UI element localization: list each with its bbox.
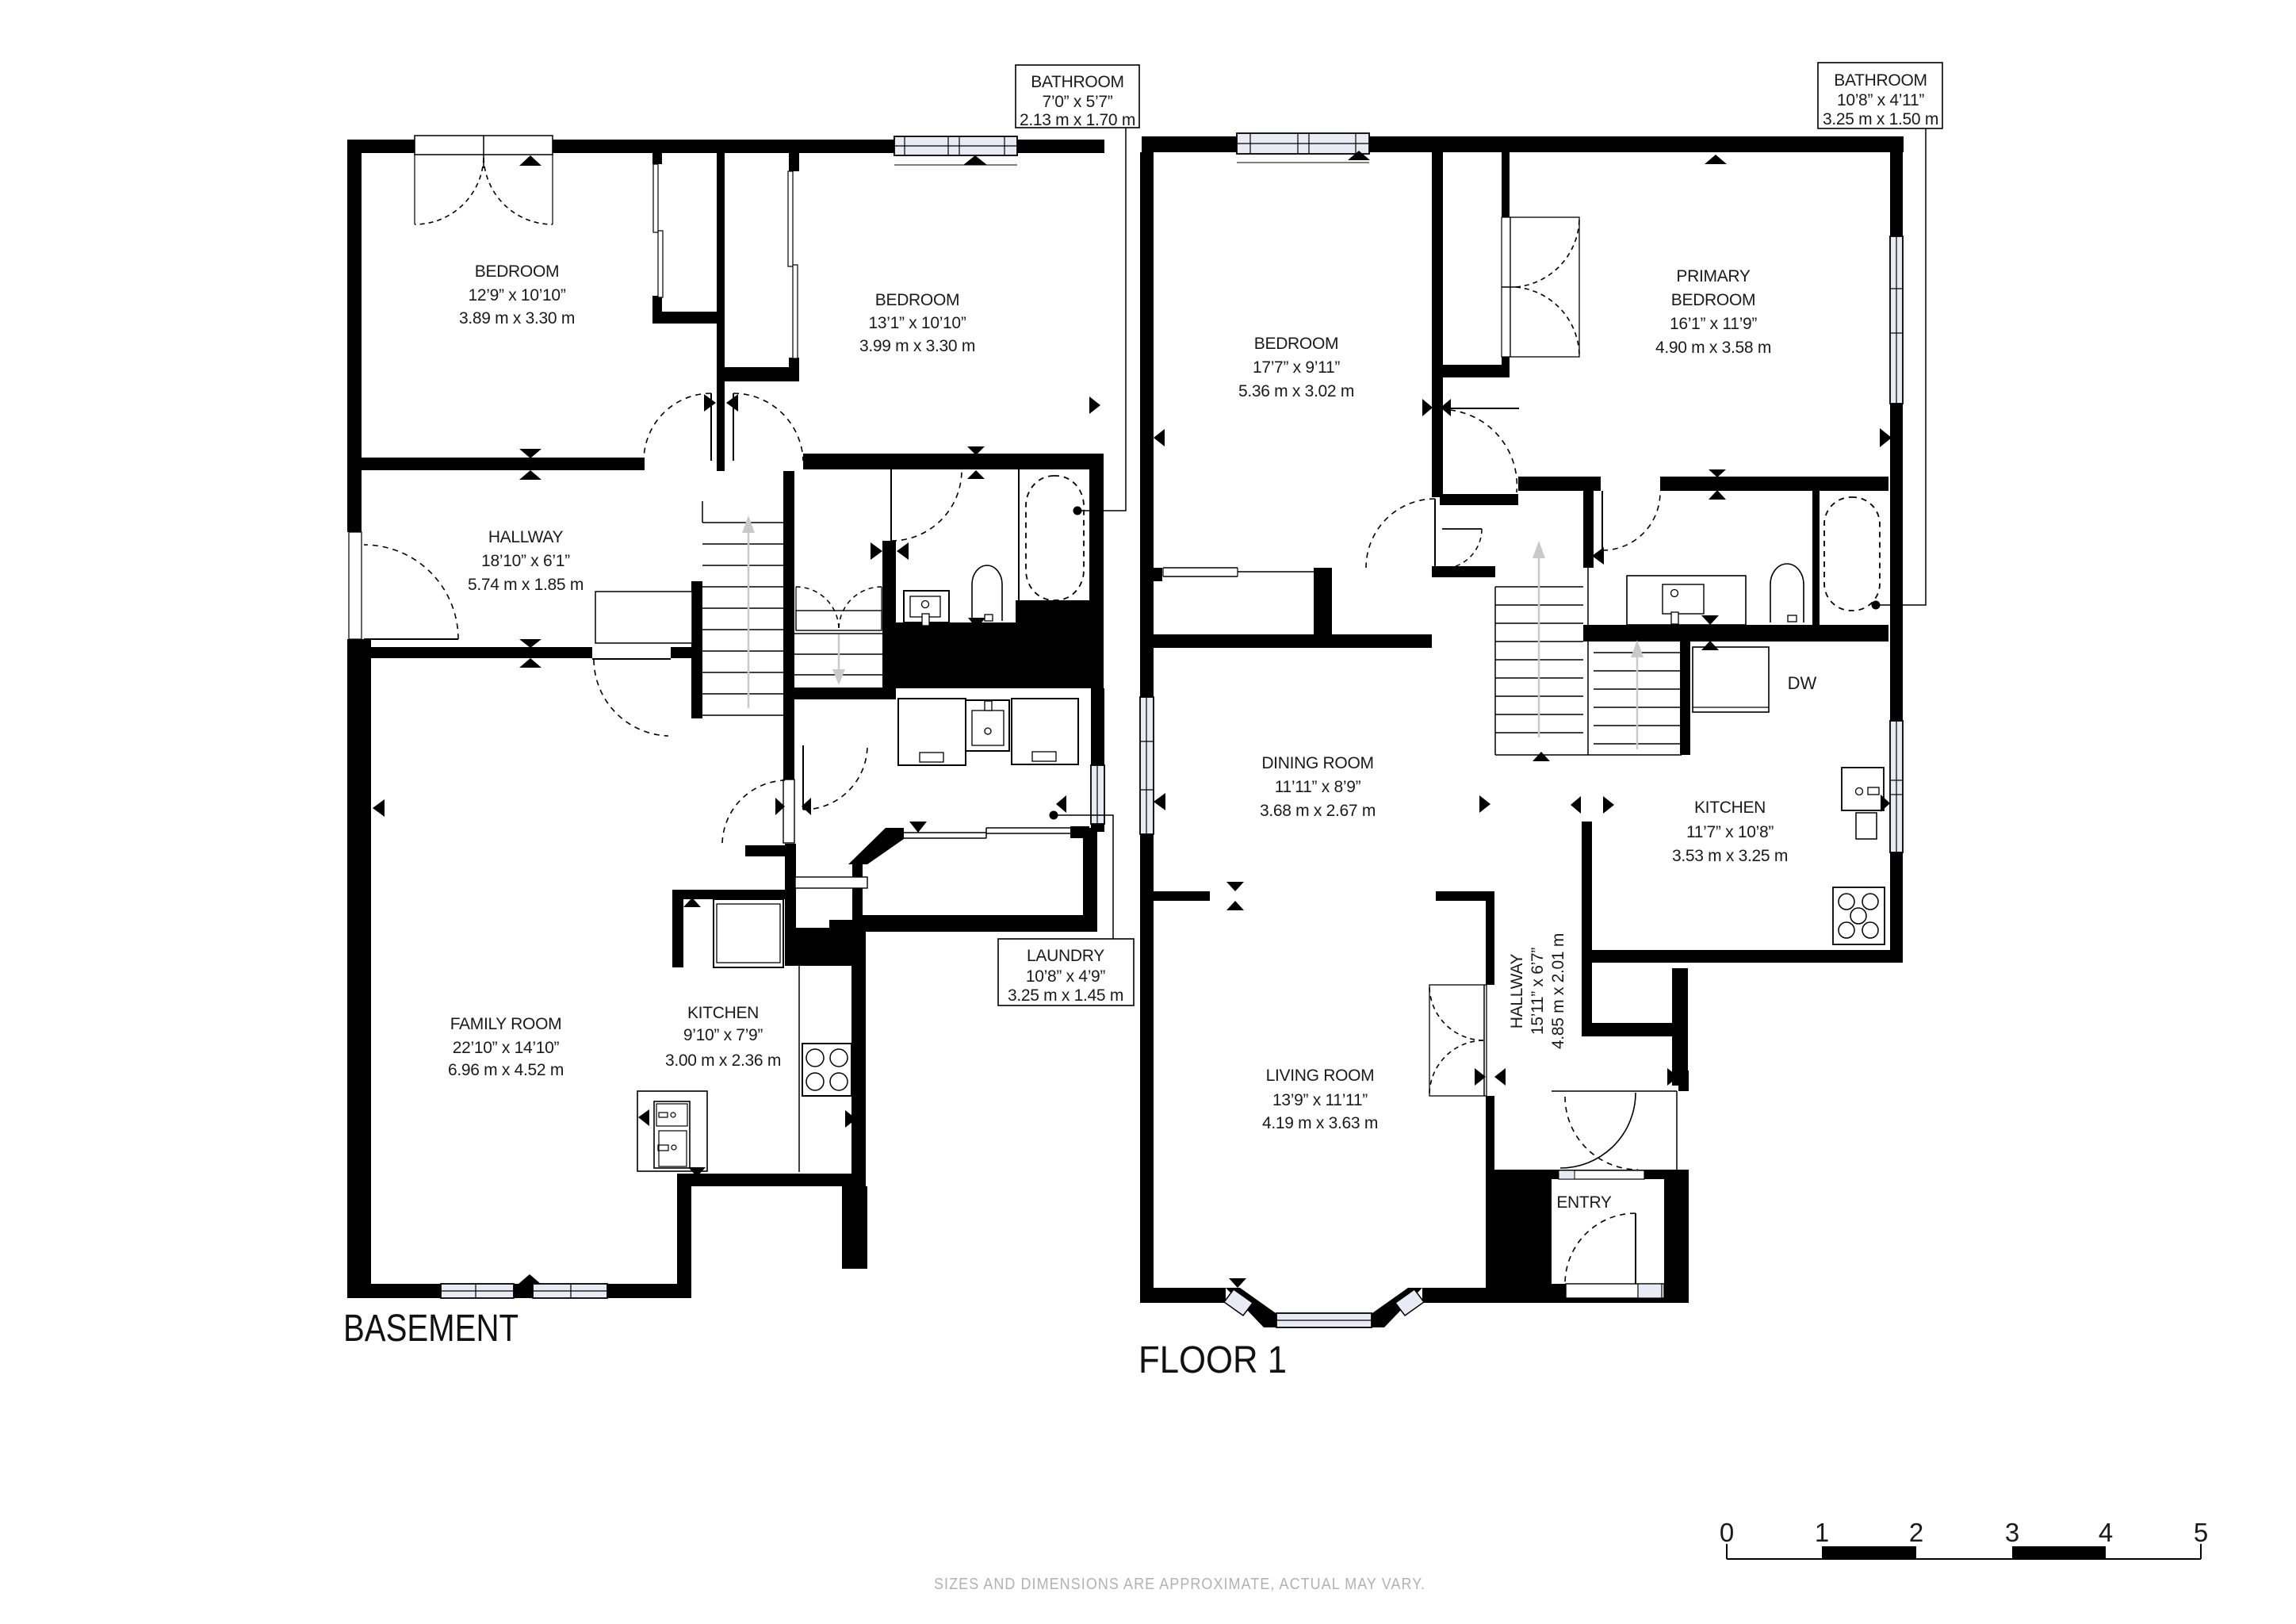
svg-text:18’10” x 6’1”: 18’10” x 6’1” xyxy=(481,552,570,570)
svg-text:HALLWAY: HALLWAY xyxy=(488,528,564,546)
svg-text:15’11” x 6’7”: 15’11” x 6’7” xyxy=(1529,948,1547,1035)
svg-text:11’7” x 10’8”: 11’7” x 10’8” xyxy=(1686,823,1774,841)
svg-text:5: 5 xyxy=(2194,1518,2208,1547)
svg-text:4: 4 xyxy=(2099,1518,2113,1547)
svg-text:2.13 m x 1.70 m: 2.13 m x 1.70 m xyxy=(1020,111,1135,129)
svg-text:12’9” x 10’10”: 12’9” x 10’10” xyxy=(468,286,565,304)
svg-text:5.36 m x 3.02 m: 5.36 m x 3.02 m xyxy=(1238,382,1354,400)
svg-text:7’0” x 5’7”: 7’0” x 5’7” xyxy=(1043,93,1113,111)
svg-text:FAMILY ROOM: FAMILY ROOM xyxy=(450,1015,562,1033)
svg-text:3.00 m x 2.36 m: 3.00 m x 2.36 m xyxy=(665,1051,781,1070)
svg-text:0: 0 xyxy=(1720,1518,1734,1547)
svg-text:DINING ROOM: DINING ROOM xyxy=(1261,754,1373,772)
svg-text:10’8” x 4’9”: 10’8” x 4’9” xyxy=(1026,967,1106,986)
svg-text:10’8” x 4’11”: 10’8” x 4’11” xyxy=(1837,91,1924,109)
svg-text:DW: DW xyxy=(1788,673,1817,693)
svg-text:3.53 m x 3.25 m: 3.53 m x 3.25 m xyxy=(1672,847,1788,865)
svg-text:BATHROOM: BATHROOM xyxy=(1834,71,1927,90)
svg-text:BEDROOM: BEDROOM xyxy=(875,291,959,309)
svg-text:3.99 m x 3.30 m: 3.99 m x 3.30 m xyxy=(859,337,975,355)
svg-text:1: 1 xyxy=(1815,1518,1829,1547)
svg-text:3: 3 xyxy=(2005,1518,2019,1547)
svg-text:4.85 m x 2.01 m: 4.85 m x 2.01 m xyxy=(1549,933,1567,1049)
svg-text:BEDROOM: BEDROOM xyxy=(1671,291,1755,309)
svg-text:SIZES AND DIMENSIONS ARE APPRO: SIZES AND DIMENSIONS ARE APPROXIMATE, AC… xyxy=(934,1576,1425,1593)
svg-text:22’10” x 14’10”: 22’10” x 14’10” xyxy=(453,1039,560,1057)
svg-text:BEDROOM: BEDROOM xyxy=(1254,335,1338,353)
svg-text:3.68 m x 2.67 m: 3.68 m x 2.67 m xyxy=(1260,802,1376,820)
svg-text:11’11” x 8’9”: 11’11” x 8’9” xyxy=(1275,778,1361,796)
svg-text:BEDROOM: BEDROOM xyxy=(475,262,559,281)
svg-text:5.74 m x 1.85 m: 5.74 m x 1.85 m xyxy=(468,576,584,594)
svg-text:LAUNDRY: LAUNDRY xyxy=(1027,947,1104,965)
svg-text:KITCHEN: KITCHEN xyxy=(1694,799,1766,817)
svg-text:6.96 m x 4.52 m: 6.96 m x 4.52 m xyxy=(448,1061,564,1079)
svg-text:PRIMARY: PRIMARY xyxy=(1676,267,1750,285)
svg-text:BASEMENT: BASEMENT xyxy=(343,1308,519,1350)
svg-text:3.89 m x 3.30 m: 3.89 m x 3.30 m xyxy=(459,309,575,327)
svg-text:17’7” x 9’11”: 17’7” x 9’11” xyxy=(1253,358,1340,377)
svg-text:KITCHEN: KITCHEN xyxy=(687,1004,759,1022)
svg-text:16’1” x 11’9”: 16’1” x 11’9” xyxy=(1670,315,1757,333)
svg-text:4.19 m x 3.63 m: 4.19 m x 3.63 m xyxy=(1262,1114,1378,1132)
svg-text:13’1” x 10’10”: 13’1” x 10’10” xyxy=(868,314,966,332)
svg-text:ENTRY: ENTRY xyxy=(1556,1193,1612,1212)
svg-text:9’10” x 7’9”: 9’10” x 7’9” xyxy=(683,1026,763,1044)
svg-text:3.25 m x 1.45 m: 3.25 m x 1.45 m xyxy=(1008,986,1123,1005)
svg-text:BATHROOM: BATHROOM xyxy=(1031,73,1123,91)
svg-text:FLOOR 1: FLOOR 1 xyxy=(1138,1339,1287,1381)
svg-text:2: 2 xyxy=(1909,1518,1923,1547)
svg-text:LIVING ROOM: LIVING ROOM xyxy=(1266,1067,1375,1085)
svg-text:HALLWAY: HALLWAY xyxy=(1508,954,1526,1029)
svg-text:13’9” x 11’11”: 13’9” x 11’11” xyxy=(1272,1091,1368,1109)
svg-text:4.90 m x 3.58 m: 4.90 m x 3.58 m xyxy=(1655,339,1771,357)
svg-text:3.25 m x 1.50 m: 3.25 m x 1.50 m xyxy=(1823,110,1938,128)
